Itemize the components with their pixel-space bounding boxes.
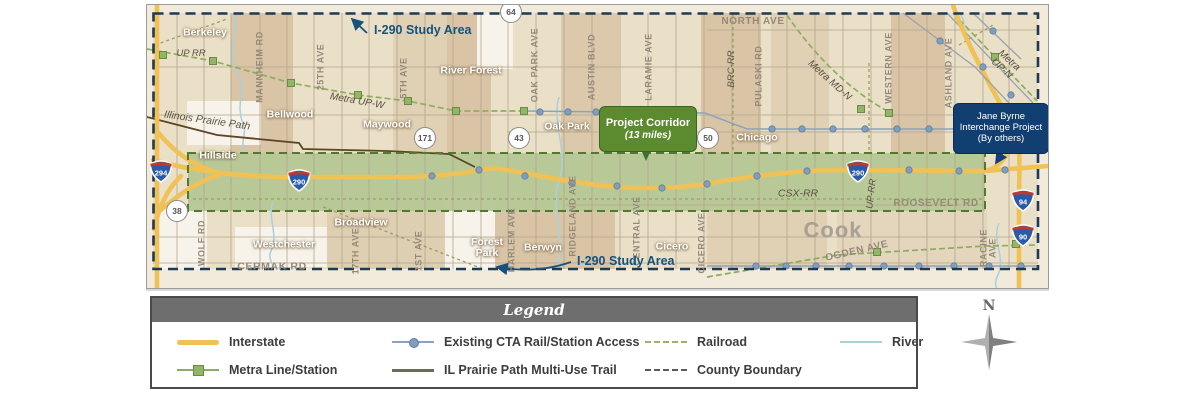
map-label-forest-park: Forest Park [471, 237, 503, 259]
map-label-pulaski-rd: PULASKI RD [754, 45, 763, 106]
map-label-roosevelt-rd: ROOSEVELT RD [893, 199, 978, 210]
study-area-label-top: I-290 Study Area [374, 23, 472, 37]
legend-header: Legend [152, 298, 916, 322]
svg-text:290: 290 [293, 178, 306, 187]
legend-label-railroad: Railroad [697, 335, 747, 349]
jane-byrne-callout: Jane Byrne Interchange Project (By other… [953, 103, 1049, 154]
map-label-chicago: Chicago [736, 132, 777, 143]
metra-swatch-icon [177, 363, 219, 377]
interstate-swatch-icon [177, 335, 219, 349]
map-label-oak-park-ave: OAK PARK AVE [530, 28, 539, 103]
interstate-shield-i94: 94 [1010, 188, 1036, 212]
map-label-metra-md-n: Metra MD-N [805, 59, 852, 103]
interstate-shield-i290-west: 290 [286, 168, 312, 192]
map-label-17th-ave: 17TH AVE [351, 228, 360, 275]
map-label-laramie-ave: LARAMIE AVE [644, 33, 653, 101]
map-label-north-ave: NORTH AVE [721, 17, 784, 28]
map-label-harlem-ave: HARLEM AVE [507, 208, 516, 273]
map-label-25th-ave: 25TH AVE [316, 44, 325, 91]
project-corridor-length: (13 miles) [600, 130, 696, 142]
map-label-western-ave: WESTERN AVE [884, 32, 893, 104]
compass-star-icon [961, 314, 1017, 370]
map-label-metra-up-n: Metra UP-N [982, 43, 1028, 87]
map-label-cicero: Cicero [656, 241, 689, 252]
study-area-map: BerkeleyUP RRMANNHEIM RD25TH AVE5TH AVER… [146, 4, 1049, 289]
route-shield-il171: 171 [414, 127, 436, 149]
svg-text:290: 290 [852, 169, 865, 178]
jane-byrne-line3: (By others) [954, 134, 1048, 145]
map-label-up-rr-vert: UP-RR [865, 178, 879, 209]
legend: Legend InterstateMetra Line/StationExist… [150, 296, 918, 389]
interstate-shield-i290-east: 290 [845, 159, 871, 183]
compass-north-label: N [960, 298, 1018, 314]
map-label-river-forest: River Forest [440, 65, 501, 76]
interstate-shield-i90: 90 [1010, 223, 1036, 247]
project-corridor-title: Project Corridor [600, 117, 696, 130]
map-label-wolf-rd: WOLF RD [197, 220, 206, 266]
map-label-cook-county: Cook [804, 218, 863, 241]
legend-title: Legend [503, 301, 565, 319]
river-swatch-icon [840, 335, 882, 349]
project-corridor-callout: Project Corridor (13 miles) [599, 106, 697, 152]
county-swatch-icon [645, 363, 687, 377]
legend-item-trail: IL Prairie Path Multi-Use Trail [392, 362, 617, 378]
map-label-oak-park: Oak Park [544, 121, 590, 132]
cta-swatch-icon [392, 335, 434, 349]
map-label-ashland-ave: ASHLAND AVE [944, 38, 953, 109]
map-label-csx-rr: CSX-RR [778, 188, 818, 199]
route-shield-il38: 38 [166, 200, 188, 222]
map-label-maywood: Maywood [363, 119, 411, 130]
map-label-hillside: Hillside [199, 150, 236, 161]
route-shield-il43: 43 [508, 127, 530, 149]
map-label-cicero-ave: CICERO AVE [697, 212, 706, 273]
map-label-5th-ave: 5TH AVE [399, 57, 408, 98]
legend-label-metra: Metra Line/Station [229, 363, 337, 377]
map-labels-layer: BerkeleyUP RRMANNHEIM RD25TH AVE5TH AVER… [147, 5, 1048, 288]
map-label-berkeley: Berkeley [183, 27, 227, 38]
svg-text:90: 90 [1019, 233, 1027, 242]
map-label-mannheim-rd: MANNHEIM RD [255, 31, 264, 103]
map-label-ogden-ave: OGDEN AVE [824, 240, 889, 265]
map-label-ridgeland-ave: RIDGELAND AVE [568, 175, 577, 256]
legend-label-river: River [892, 335, 923, 349]
legend-item-railroad: Railroad [645, 334, 747, 350]
map-label-berwyn: Berwyn [524, 242, 562, 253]
legend-body: InterstateMetra Line/StationExisting CTA… [152, 322, 916, 387]
route-shield-il64: 64 [500, 4, 522, 23]
svg-text:94: 94 [1019, 198, 1028, 207]
map-label-illinois-prairie-path: Illinois Prairie Path [163, 109, 251, 132]
legend-item-cta: Existing CTA Rail/Station Access [392, 334, 639, 350]
map-label-westchester: Westchester [253, 239, 315, 250]
legend-label-interstate: Interstate [229, 335, 285, 349]
map-label-metra-up-w: Metra UP-W [329, 92, 385, 112]
compass-rose: N [960, 298, 1018, 375]
map-label-cermak-rd: CERMAK RD [237, 261, 307, 272]
map-label-austin-blvd: AUSTIN BLVD [587, 34, 596, 100]
study-area-label-bottom: I-290 Study Area [577, 254, 675, 268]
interstate-shield-i294: 294 [148, 159, 174, 183]
legend-item-interstate: Interstate [177, 334, 285, 350]
legend-item-river: River [840, 334, 923, 350]
legend-label-county: County Boundary [697, 363, 802, 377]
map-label-brc-rr: BRC-RR [727, 51, 737, 88]
legend-label-cta: Existing CTA Rail/Station Access [444, 335, 639, 349]
map-label-up-rr: UP RR [176, 49, 205, 59]
railroad-swatch-icon [645, 335, 687, 349]
legend-item-county: County Boundary [645, 362, 802, 378]
route-shield-il50: 50 [697, 127, 719, 149]
svg-text:294: 294 [155, 169, 168, 178]
trail-swatch-icon [392, 363, 434, 377]
map-label-bellwood: Bellwood [267, 109, 314, 120]
map-label-1st-ave: 1ST AVE [414, 231, 423, 272]
map-label-racine-ave: RACINE AVE [980, 219, 999, 278]
legend-item-metra: Metra Line/Station [177, 362, 337, 378]
page: BerkeleyUP RRMANNHEIM RD25TH AVE5TH AVER… [0, 0, 1200, 403]
map-label-broadview: Broadview [334, 217, 387, 228]
legend-label-trail: IL Prairie Path Multi-Use Trail [444, 363, 617, 377]
